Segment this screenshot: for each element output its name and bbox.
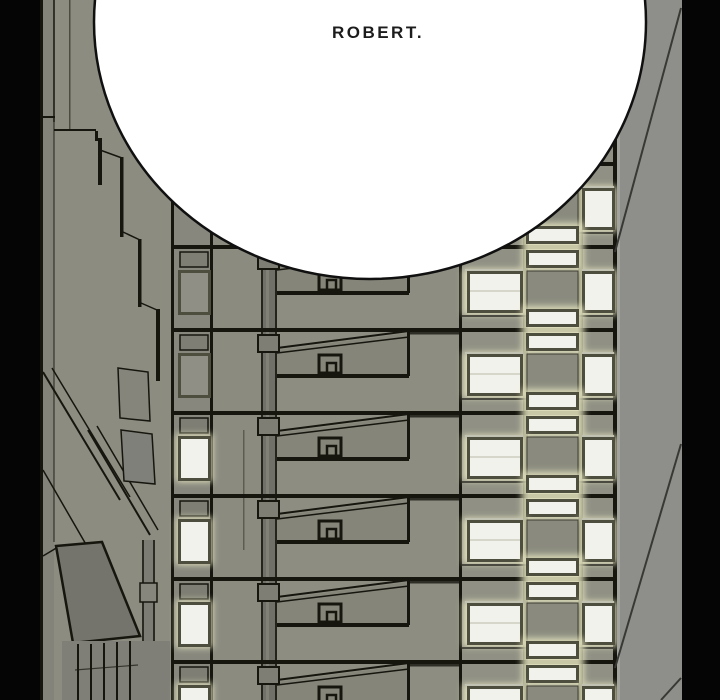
comic-panel: ROBERT. <box>0 0 720 700</box>
night-buildings-scene: ROBERT. <box>0 0 720 700</box>
drain-pipe <box>261 240 277 700</box>
speech-bubble-text: ROBERT. <box>332 23 424 42</box>
